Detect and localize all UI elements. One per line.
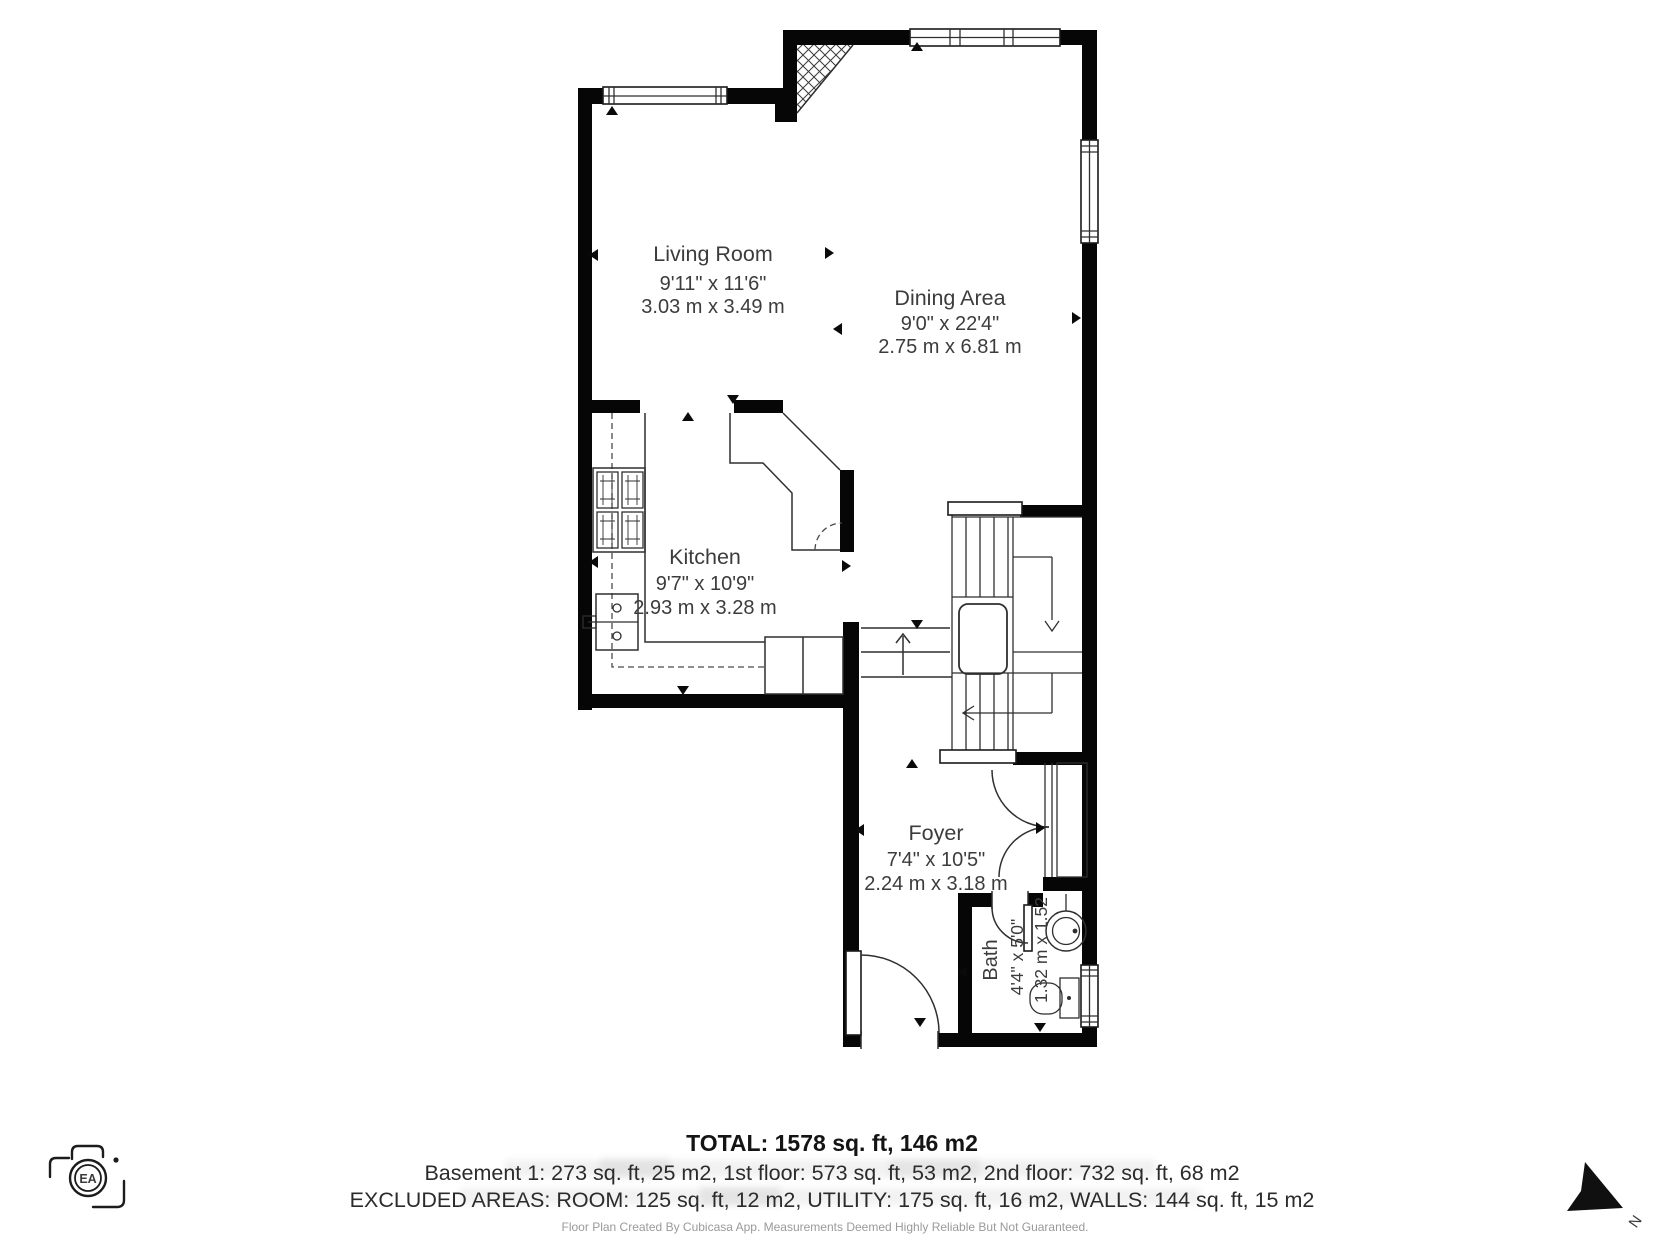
disclaimer-text: Floor Plan Created By Cubicasa App. Meas… [562, 1220, 1089, 1234]
svg-text:Living Room: Living Room [653, 242, 773, 266]
camera-logo: EA [50, 1146, 124, 1207]
kitchen-peninsula [730, 413, 842, 550]
svg-text:9'7" x 10'9": 9'7" x 10'9" [656, 573, 755, 595]
north-arrow-icon: N [1567, 1162, 1645, 1230]
living-room-label: Living Room 9'11" x 11'6" 3.03 m x 3.49 … [641, 242, 784, 318]
staircase [940, 502, 1082, 763]
hallway [861, 628, 952, 677]
stove-icon [593, 468, 645, 552]
kitchen-label: Kitchen 9'7" x 10'9" 2.93 m x 3.28 m [633, 545, 776, 619]
svg-text:9'0" x 22'4": 9'0" x 22'4" [901, 313, 1000, 335]
svg-text:Dining Area: Dining Area [894, 286, 1005, 310]
svg-text:Foyer: Foyer [909, 821, 964, 845]
excluded-areas-text: EXCLUDED AREAS: ROOM: 125 sq. ft, 12 m2,… [350, 1188, 1315, 1212]
floor-plan-page: Living Room 9'11" x 11'6" 3.03 m x 3.49 … [0, 0, 1680, 1260]
bath-window-icon [1081, 965, 1098, 1027]
svg-text:9'11" x 11'6": 9'11" x 11'6" [660, 273, 767, 295]
total-area-text: TOTAL: 1578 sq. ft, 146 m2 [686, 1130, 978, 1156]
svg-text:2.24 m x 3.18 m: 2.24 m x 3.18 m [864, 873, 1007, 895]
closet-double-door-icon [992, 763, 1087, 877]
svg-text:Bath: Bath [980, 939, 1002, 980]
entry-door-icon [846, 951, 939, 1049]
dining-top-window-icon [910, 29, 1060, 46]
svg-text:4'4" x 5'0": 4'4" x 5'0" [1007, 919, 1027, 996]
svg-text:Kitchen: Kitchen [669, 545, 741, 569]
logo-text: EA [79, 1172, 96, 1186]
bay-hatch-triangle [797, 45, 853, 113]
floor-plan: Living Room 9'11" x 11'6" 3.03 m x 3.49 … [0, 0, 1680, 1260]
svg-text:2.93 m x 3.28 m: 2.93 m x 3.28 m [633, 597, 776, 619]
foyer-label: Foyer 7'4" x 10'5" 2.24 m x 3.18 m [864, 821, 1007, 895]
floor-areas-text: Basement 1: 273 sq. ft, 25 m2, 1st floor… [424, 1161, 1239, 1185]
north-label: N [1625, 1212, 1645, 1231]
svg-text:1.32 m x 1.52: 1.32 m x 1.52 [1031, 897, 1051, 1003]
svg-text:2.75 m x 6.81 m: 2.75 m x 6.81 m [878, 336, 1021, 358]
svg-text:7'4" x 10'5": 7'4" x 10'5" [887, 849, 986, 871]
bath-label: Bath 4'4" x 5'0" 1.32 m x 1.52 [980, 897, 1051, 1003]
living-room-window-icon [603, 87, 727, 104]
bathroom-sink-icon [1046, 894, 1086, 951]
dining-side-window-icon [1081, 140, 1098, 243]
svg-text:3.03 m x 3.49 m: 3.03 m x 3.49 m [641, 296, 784, 318]
dining-area-label: Dining Area 9'0" x 22'4" 2.75 m x 6.81 m [878, 286, 1021, 358]
area-summary: TOTAL: 1578 sq. ft, 146 m2 Basement 1: 2… [350, 1130, 1315, 1234]
